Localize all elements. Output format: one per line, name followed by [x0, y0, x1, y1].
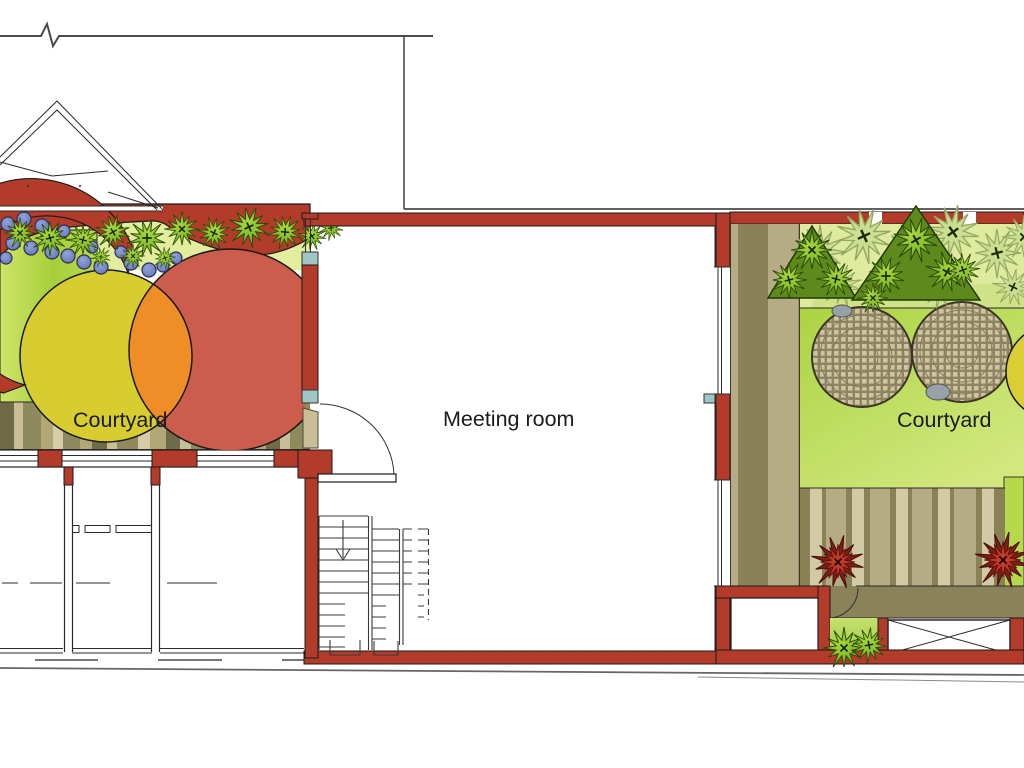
south-wall: [304, 651, 730, 664]
south-wall-band: [716, 586, 828, 598]
meeting-room: Meeting room: [298, 213, 731, 664]
window-teal-marker: [302, 390, 318, 403]
north-wall: [304, 213, 730, 226]
wall-stub: [64, 467, 73, 485]
wall-pier: [38, 450, 62, 467]
left-courtyard: Courtyard: [0, 179, 349, 451]
colour-circles: [20, 249, 331, 451]
west-wall-lower: [305, 478, 318, 658]
ground-line-secondary: [698, 677, 1024, 682]
stair-direction-arrow: [336, 520, 350, 560]
stone-mound: [832, 305, 852, 317]
window-teal-marker: [704, 394, 716, 403]
meeting-room-label: Meeting room: [443, 407, 574, 431]
floor-plan-drawing: Courtyard: [0, 0, 1024, 768]
left-courtyard-label: Courtyard: [73, 408, 167, 432]
interior-partition: [72, 525, 152, 533]
window-teal-marker: [302, 252, 318, 265]
floor-plan-canvas: Courtyard: [0, 0, 1024, 768]
staircase: [319, 516, 429, 655]
property-line-with-break: [0, 24, 433, 46]
small-room: [731, 598, 818, 652]
west-wall: [302, 265, 318, 390]
right-courtyard-label: Courtyard: [897, 408, 991, 432]
skylight-crossed-box: [888, 620, 1010, 654]
threshold-wedge: [303, 408, 318, 448]
left-building-outline: [0, 450, 304, 653]
ground-line: [0, 668, 1024, 675]
door-leaf: [318, 474, 396, 482]
west-wall: [302, 213, 318, 219]
wall-stub: [151, 467, 160, 485]
stone-mound: [926, 384, 950, 400]
right-building: Courtyard: [716, 200, 1024, 669]
walkway: [827, 586, 1024, 618]
east-window-opening: [714, 267, 731, 394]
wall-pier: [152, 450, 197, 467]
interior-walls: [65, 485, 160, 652]
east-window-opening: [714, 480, 731, 586]
wall-pier: [274, 450, 300, 467]
